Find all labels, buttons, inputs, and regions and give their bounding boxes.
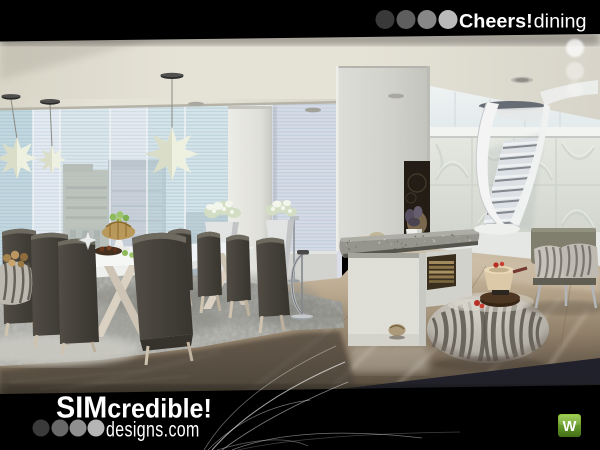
svg-text:Cheers!dining: Cheers!dining	[459, 11, 586, 33]
svg-text:W: W	[563, 419, 577, 435]
svg-text:designs.com: designs.com	[106, 417, 200, 441]
